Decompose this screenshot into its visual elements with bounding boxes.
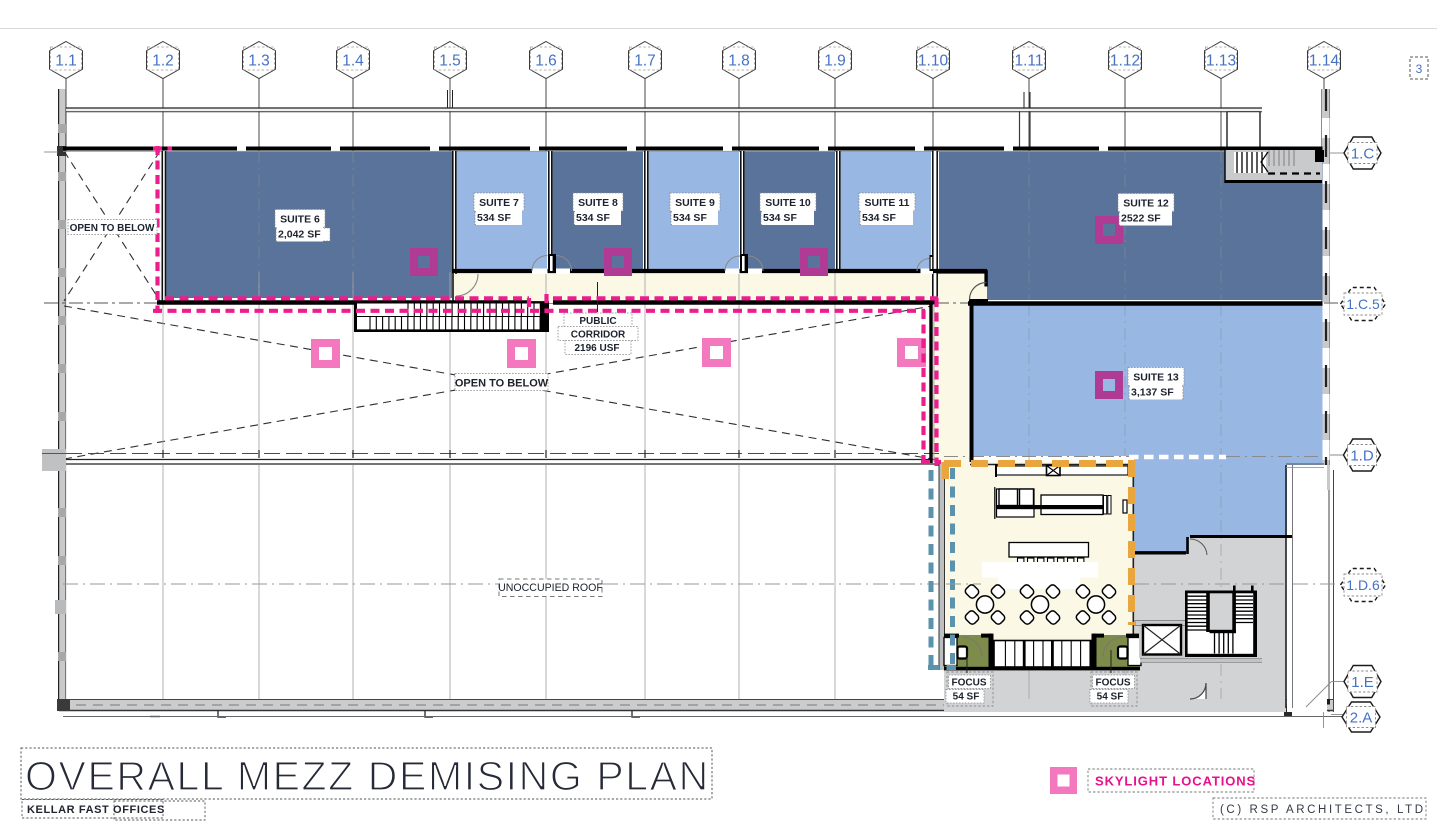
svg-text:SUITE 6: SUITE 6 xyxy=(280,214,320,226)
svg-text:1.C: 1.C xyxy=(1351,145,1375,162)
svg-text:CORRIDOR: CORRIDOR xyxy=(571,330,626,341)
svg-text:FOCUS: FOCUS xyxy=(952,678,987,689)
svg-text:OVERALL MEZZ DEMISING PLAN: OVERALL MEZZ DEMISING PLAN xyxy=(25,753,710,799)
svg-text:OPEN TO BELOW: OPEN TO BELOW xyxy=(70,223,155,234)
svg-text:2.A: 2.A xyxy=(1350,709,1373,726)
svg-text:SUITE 9: SUITE 9 xyxy=(675,197,715,209)
svg-text:1.11: 1.11 xyxy=(1014,52,1043,69)
svg-text:1.9: 1.9 xyxy=(824,52,846,69)
svg-text:534 SF: 534 SF xyxy=(673,212,707,224)
svg-text:2522 SF: 2522 SF xyxy=(1121,213,1161,225)
svg-text:1.D: 1.D xyxy=(1350,447,1374,464)
svg-text:SUITE 7: SUITE 7 xyxy=(479,197,519,209)
svg-text:54 SF: 54 SF xyxy=(1097,692,1124,703)
svg-text:SUITE 13: SUITE 13 xyxy=(1133,372,1179,384)
svg-text:SUITE 12: SUITE 12 xyxy=(1123,198,1169,210)
svg-text:534 SF: 534 SF xyxy=(862,212,896,224)
svg-text:2196 USF: 2196 USF xyxy=(574,343,619,354)
svg-text:3: 3 xyxy=(1416,62,1423,76)
svg-text:1.3: 1.3 xyxy=(248,52,270,69)
svg-text:534 SF: 534 SF xyxy=(576,212,610,224)
svg-text:(C) RSP ARCHITECTS, LTD: (C) RSP ARCHITECTS, LTD xyxy=(1220,804,1426,816)
svg-text:2,042 SF: 2,042 SF xyxy=(278,229,321,241)
svg-text:1.2: 1.2 xyxy=(152,52,174,69)
svg-text:FOCUS: FOCUS xyxy=(1096,678,1131,689)
svg-text:1.C.5: 1.C.5 xyxy=(1346,296,1380,312)
svg-text:1.D.6: 1.D.6 xyxy=(1346,577,1380,593)
svg-text:1.13: 1.13 xyxy=(1206,52,1236,69)
svg-text:1.4: 1.4 xyxy=(342,52,364,69)
svg-text:1.6: 1.6 xyxy=(535,52,557,69)
svg-text:SUITE 10: SUITE 10 xyxy=(765,197,811,209)
svg-text:1.14: 1.14 xyxy=(1309,52,1340,69)
svg-text:534 SF: 534 SF xyxy=(477,212,511,224)
svg-text:1.E: 1.E xyxy=(1351,674,1374,691)
svg-text:1.1: 1.1 xyxy=(55,52,77,69)
svg-text:3,137 SF: 3,137 SF xyxy=(1131,387,1174,399)
svg-text:1.7: 1.7 xyxy=(634,52,656,69)
svg-text:54 SF: 54 SF xyxy=(953,692,980,703)
svg-text:PUBLIC: PUBLIC xyxy=(579,316,616,327)
svg-text:KELLAR FAST OFFICES: KELLAR FAST OFFICES xyxy=(27,804,165,816)
svg-text:UNOCCUPIED ROOF: UNOCCUPIED ROOF xyxy=(498,582,603,594)
svg-text:SUITE 8: SUITE 8 xyxy=(578,197,618,209)
svg-text:1.8: 1.8 xyxy=(728,52,750,69)
svg-text:1.5: 1.5 xyxy=(439,52,461,69)
svg-text:SUITE 11: SUITE 11 xyxy=(865,197,910,209)
svg-text:1.12: 1.12 xyxy=(1110,52,1140,69)
svg-text:534 SF: 534 SF xyxy=(763,212,797,224)
svg-text:1.10: 1.10 xyxy=(918,52,949,69)
svg-text:OPEN TO BELOW: OPEN TO BELOW xyxy=(455,378,549,390)
svg-text:SKYLIGHT LOCATIONS: SKYLIGHT LOCATIONS xyxy=(1095,774,1256,789)
